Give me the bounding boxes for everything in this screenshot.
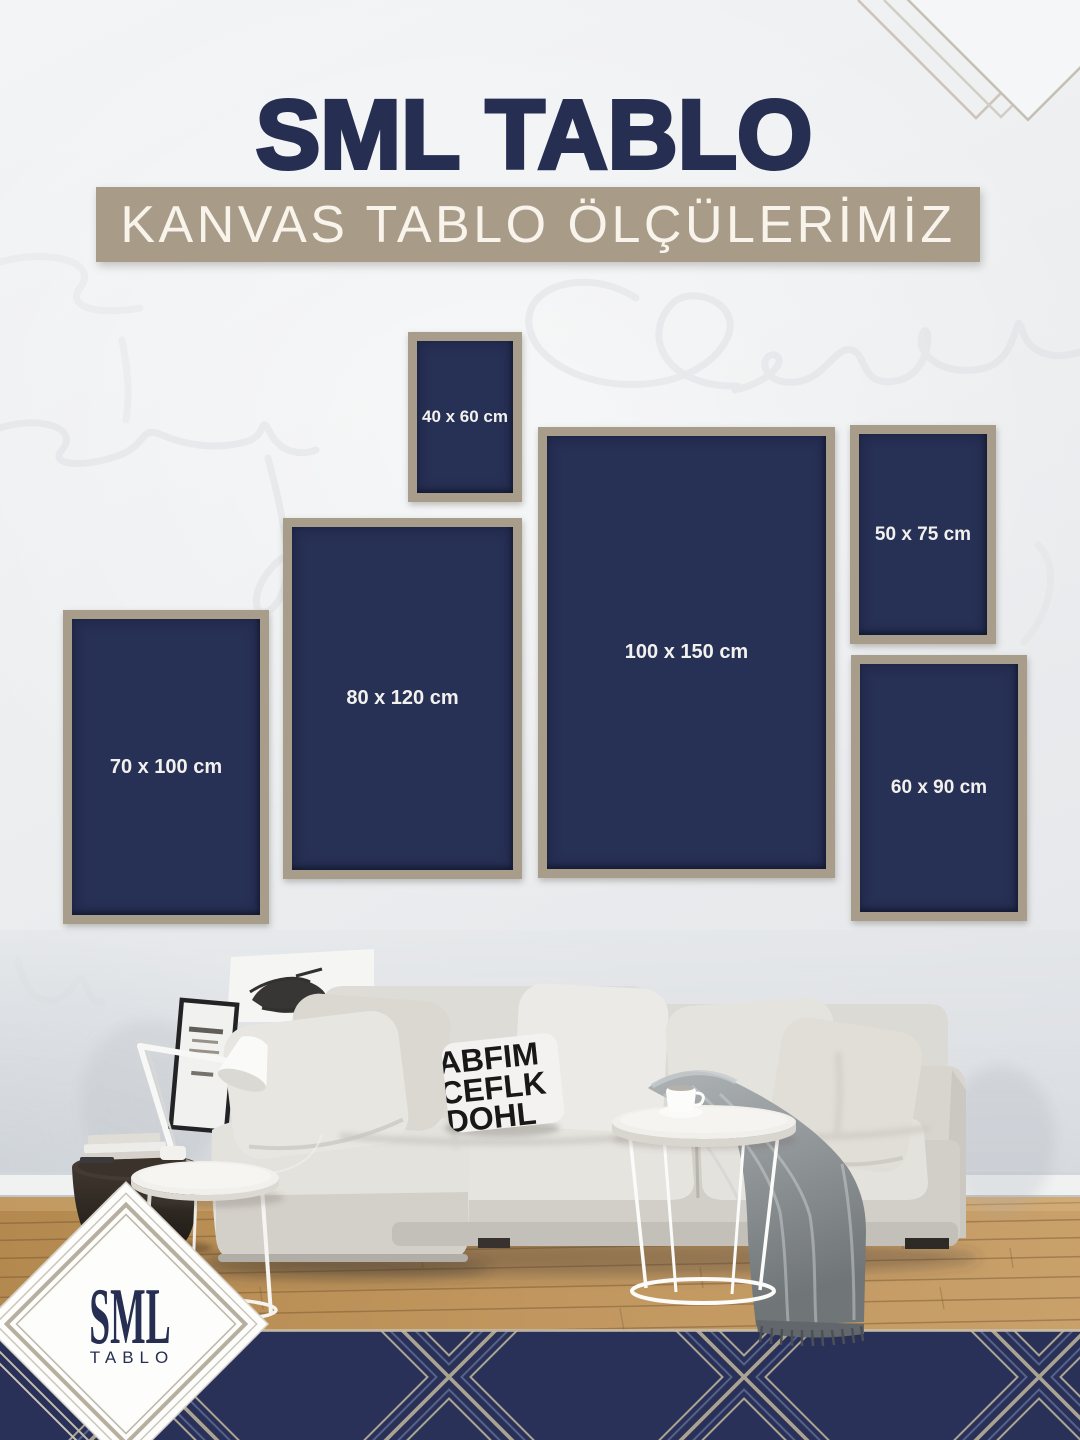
svg-text:TABLO: TABLO xyxy=(90,1348,174,1367)
